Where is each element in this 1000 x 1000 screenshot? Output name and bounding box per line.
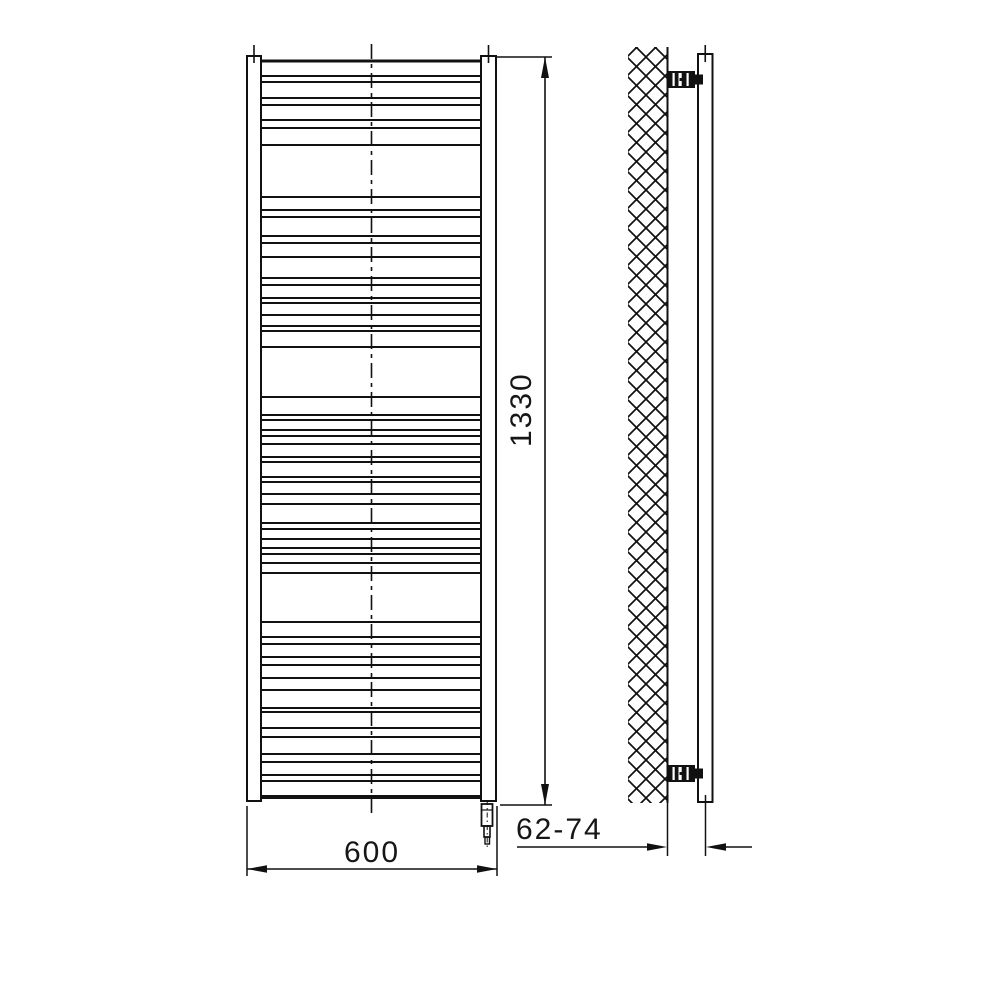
bracket-slit [673, 73, 675, 86]
arrowhead-left [247, 865, 267, 873]
left-rail [247, 56, 261, 801]
dimension-height: 1330 [497, 57, 552, 805]
bracket-slit-pin [680, 78, 685, 81]
width-dimension-label: 600 [344, 836, 400, 869]
right-rail [481, 56, 496, 801]
arrowhead-right [647, 843, 667, 851]
wall-hatch [628, 47, 667, 803]
bracket-slit [687, 767, 689, 780]
bracket-clamp [695, 75, 704, 85]
drawing-sheet: 1330 600 62-74 [0, 0, 1000, 1000]
dimension-width: 600 [247, 806, 497, 876]
bracket-slit-pin [680, 772, 685, 775]
bracket-slit [687, 73, 689, 86]
bracket-clamp [695, 769, 704, 779]
radiator-dimension-drawing: 1330 600 62-74 [0, 0, 1000, 1000]
arrowhead-down [541, 784, 549, 805]
arrowhead-up [541, 57, 549, 78]
dimension-depth: 62-74 [516, 795, 752, 856]
arrowhead-right [477, 865, 497, 873]
heating-element [482, 800, 493, 848]
height-dimension-label: 1330 [505, 372, 538, 447]
side-view [628, 45, 713, 803]
arrowhead-left [706, 843, 726, 851]
depth-dimension-label: 62-74 [516, 813, 603, 846]
radiator-side-profile [698, 54, 713, 802]
front-view [247, 44, 496, 848]
bracket-slit [673, 767, 675, 780]
